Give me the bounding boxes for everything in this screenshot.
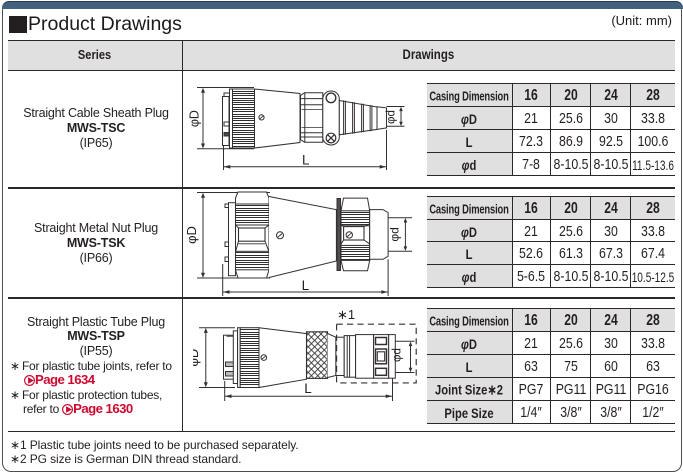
svg-text:φD: φD	[188, 110, 202, 127]
svg-text:φd: φd	[386, 110, 398, 124]
svg-text:φD: φD	[193, 349, 201, 367]
svg-text:L: L	[302, 152, 310, 167]
svg-text:φd: φd	[388, 227, 402, 241]
svg-text:φD: φD	[185, 226, 199, 244]
svg-text:L: L	[302, 278, 310, 293]
svg-text:∗1: ∗1	[337, 307, 355, 322]
svg-text:L: L	[304, 381, 312, 396]
svg-text:φd: φd	[392, 348, 404, 362]
